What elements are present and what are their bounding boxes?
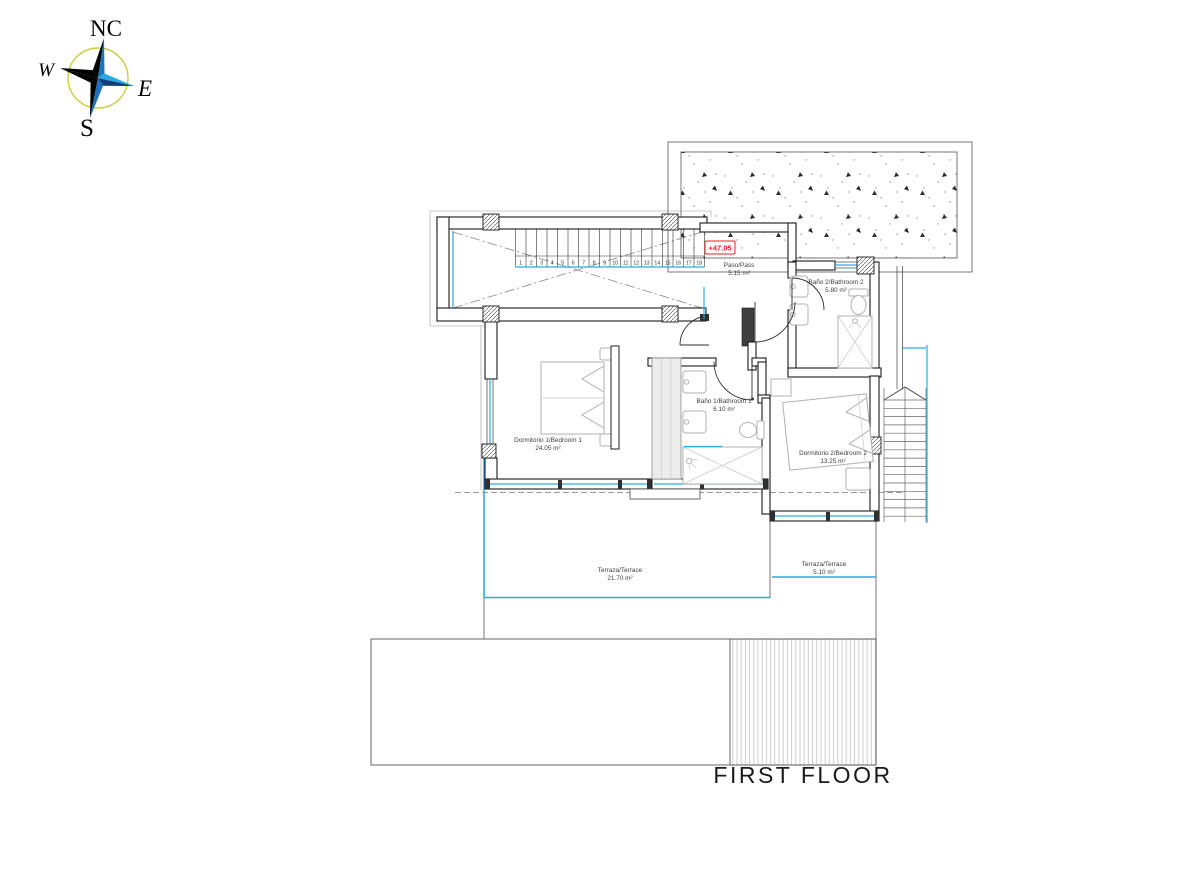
level-marker: +47.05 [708,244,731,253]
floor-title: FIRST FLOOR [713,762,892,788]
stair-step-number: 13 [644,261,650,267]
stair-step-number: 11 [623,261,628,267]
exterior-stairs [884,345,927,523]
stair-step-number: 15 [665,261,671,267]
wardrobe-icon [652,358,681,479]
closet-icon [771,379,791,396]
stair-step-number: 5 [561,261,564,267]
terrace-small-area: 5.10 m² [813,569,835,576]
terrace-main-name: Terraza/Terrace [598,567,643,574]
shower-head-icon [687,459,692,464]
terrace-small: Terraza/Terrace 5.10 m² [772,561,876,577]
floor-plan-page: NC W E S Terraza/Terrace 21.70 m² Terraz… [0,0,1200,875]
stair-step-number: 4 [551,261,554,267]
bedroom1-area: 24.05 m² [535,445,560,452]
lower-roof-block [371,521,876,765]
floor-plan-canvas: NC W E S Terraza/Terrace 21.70 m² Terraz… [0,0,1200,875]
paso-area: 5.15 m² [728,270,750,277]
toilet-tank-icon [849,289,868,296]
compass-rose: NC W E S [38,16,152,142]
stair-step-number: 6 [572,261,575,267]
compass-east-label: E [137,76,152,101]
stair-step-number: 12 [633,261,639,267]
window-bands [485,479,879,521]
faucet-icon [684,380,688,384]
bedroom2-area: 13.25 m² [820,458,845,465]
stair-step-number: 8 [593,261,596,267]
terrace-small-name: Terraza/Terrace [802,561,847,568]
headboard-panel [611,346,619,449]
faucet-icon [791,284,795,288]
bedroom1-name: Dormitorio 1/Bedroom 1 [514,437,582,444]
stair-step-number: 2 [530,261,533,267]
compass-west-label: W [38,60,56,81]
stair-step-number: 14 [654,261,660,267]
stair-step-number: 3 [540,261,543,267]
shower-head-icon [853,319,858,324]
bathroom1-door-swing [714,362,752,400]
bathroom2-name: Baño 2/Bathroom 2 [808,279,864,286]
bedroom2-name: Dormitorio 2/Bedroom 2 [799,450,867,457]
stair-step-number: 17 [686,261,692,267]
bathroom2-area: 5.80 m² [825,287,847,294]
compass-south-label: S [80,115,94,142]
toilet-icon [851,296,866,315]
bedroom2-furniture [771,379,873,490]
stair-step-number: 18 [696,261,702,267]
stair-step-number: 9 [603,261,606,267]
stair-step-number: 10 [612,261,618,267]
stair-step-number: 16 [675,261,681,267]
bathroom1-area: 6.10 m² [713,406,735,413]
bedroom1-furniture [541,346,681,479]
pergola-hatch [730,639,876,765]
toilet-icon [740,423,757,438]
terrace-main-area: 21.70 m² [607,575,632,582]
toilet-tank-icon [757,421,764,439]
stair-step-number: 1 [519,261,522,267]
nightstand-icon [846,468,870,490]
compass-north-label: NC [90,16,122,41]
compass-star-icon [60,38,134,118]
faucet-icon [684,420,688,424]
paso-name: Paso/Pass [724,262,755,269]
bathroom1-name: Baño 1/Bathroom 1 [696,398,752,405]
terrace-threshold [630,489,700,499]
stair-step-number: 7 [582,261,585,267]
